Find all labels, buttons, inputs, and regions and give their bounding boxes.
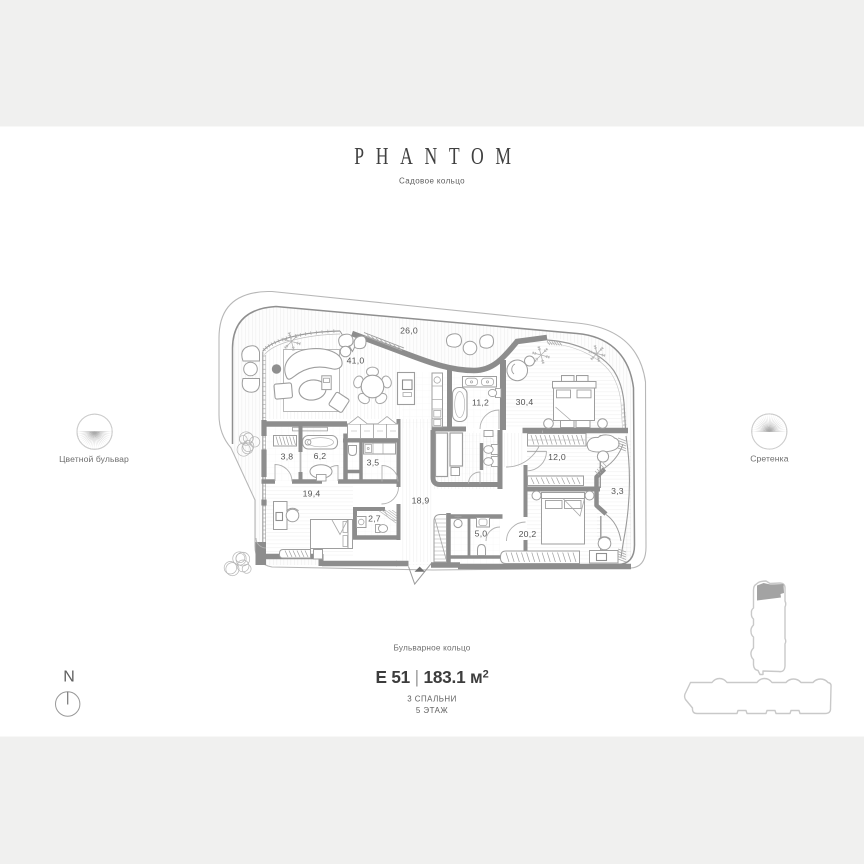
svg-text:5 ЭТАЖ: 5 ЭТАЖ xyxy=(416,706,449,715)
svg-text:20,2: 20,2 xyxy=(519,529,537,539)
svg-text:3,3: 3,3 xyxy=(611,486,624,496)
svg-text:11,2: 11,2 xyxy=(472,398,489,408)
svg-text:12,0: 12,0 xyxy=(548,452,566,462)
svg-text:18,9: 18,9 xyxy=(412,496,430,506)
svg-text:Бульварное кольцо: Бульварное кольцо xyxy=(393,644,470,653)
svg-text:3 СПАЛЬНИ: 3 СПАЛЬНИ xyxy=(407,695,457,704)
svg-text:41,0: 41,0 xyxy=(347,356,365,366)
svg-text:Сретенка: Сретенка xyxy=(750,454,788,464)
svg-text:Садовое кольцо: Садовое кольцо xyxy=(399,177,465,186)
svg-text:3,5: 3,5 xyxy=(367,458,380,468)
svg-text:26,0: 26,0 xyxy=(400,326,418,336)
svg-text:30,4: 30,4 xyxy=(516,397,534,407)
svg-text:N: N xyxy=(63,669,75,686)
svg-text:19,4: 19,4 xyxy=(303,489,321,499)
svg-text:3,8: 3,8 xyxy=(281,452,294,462)
svg-text:E 51 | 183.1 м2: E 51 | 183.1 м2 xyxy=(375,667,488,687)
svg-text:Цветной бульвар: Цветной бульвар xyxy=(59,454,129,464)
svg-text:6,2: 6,2 xyxy=(314,451,327,461)
svg-text:5,0: 5,0 xyxy=(475,529,488,539)
svg-text:PHANTOM: PHANTOM xyxy=(354,142,522,170)
svg-text:2,7: 2,7 xyxy=(368,514,381,524)
